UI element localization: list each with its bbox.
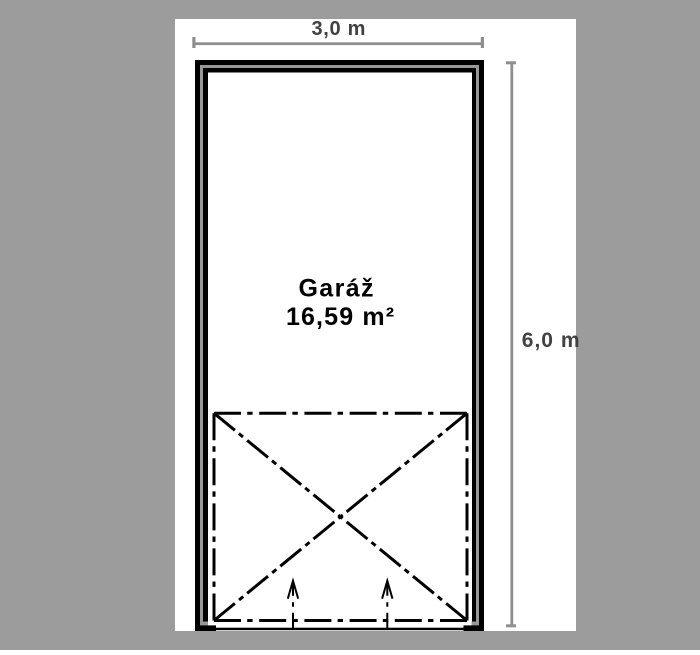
- svg-text:3,0 m: 3,0 m: [311, 18, 366, 40]
- svg-text:Garáž: Garáž: [298, 275, 374, 303]
- svg-text:6,0 m: 6,0 m: [522, 329, 581, 352]
- svg-text:16,59 m²: 16,59 m²: [286, 303, 395, 331]
